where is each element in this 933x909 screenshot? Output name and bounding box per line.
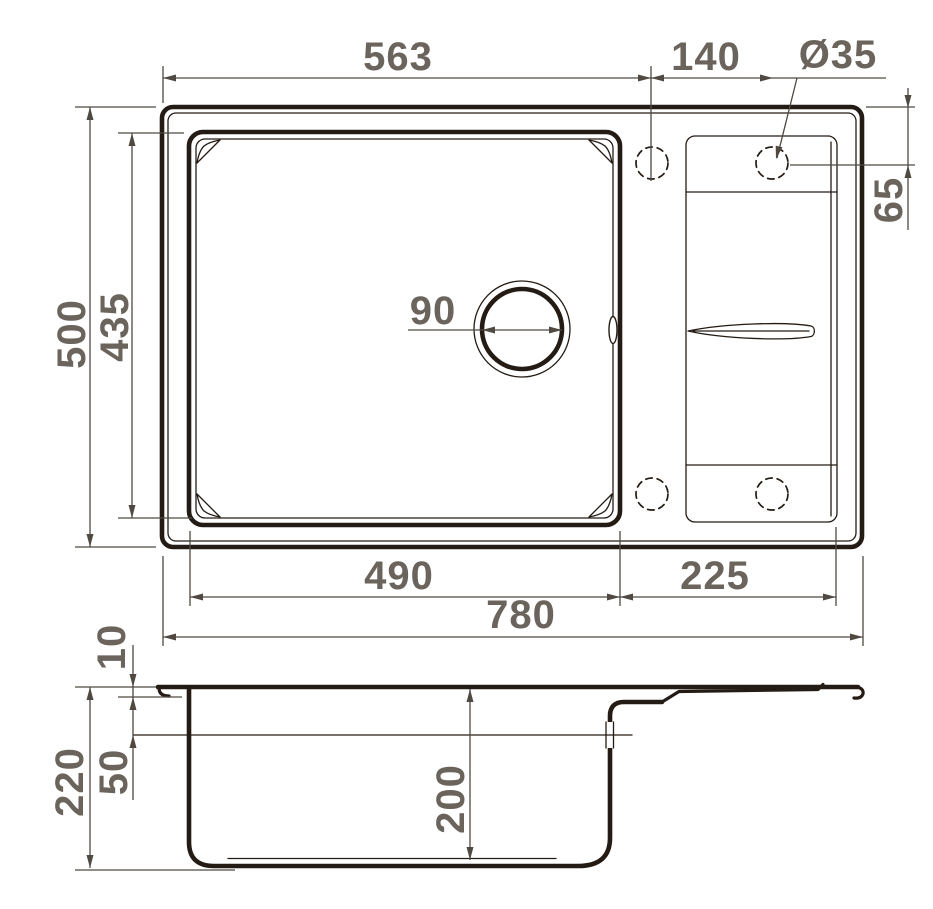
- faucet-hole-bottom-right: [756, 478, 788, 510]
- dim-label-rim-height: 10: [92, 624, 132, 671]
- dim-label-hole-spacing: 140: [671, 37, 741, 77]
- dim-label-hole-diameter: Ø35: [799, 35, 878, 75]
- dimension-lines: [90, 78, 915, 868]
- dim-label-overall-depth: 500: [52, 299, 92, 369]
- arrowheads: [87, 75, 912, 869]
- bowl-corner-chamfer-br: [589, 494, 612, 517]
- faucet-hole-bottom-left: [636, 478, 668, 510]
- bowl-corner-chamfer-tl: [197, 140, 220, 163]
- dim-label-drain-diameter: 90: [410, 291, 457, 331]
- top-view: [162, 107, 862, 547]
- dim-label-bowl-width: 490: [364, 556, 434, 596]
- dim-label-overflow-drop: 50: [94, 749, 134, 796]
- dim-label-wing-width: 225: [680, 556, 750, 596]
- dim-label-bowl-span: 563: [363, 37, 433, 77]
- rim-outline: [162, 107, 862, 547]
- dimensions: [75, 66, 915, 870]
- sink-dimension-drawing: 563 140 Ø35 65 500 435 90 490 225 780 10…: [0, 0, 933, 909]
- drain-groove: [688, 324, 814, 339]
- bowl-corner-chamfer-tr: [589, 140, 612, 163]
- faucet-hole-top-left: [636, 147, 668, 179]
- rim-inner-line: [168, 113, 856, 541]
- dim-label-hole-inset: 65: [869, 177, 909, 224]
- dim-label-bowl-depth-outer: 435: [95, 292, 135, 362]
- dim-label-overall-width: 780: [486, 595, 556, 635]
- overflow-slot: [609, 317, 617, 344]
- dim-label-bowl-inner-depth: 200: [431, 764, 471, 834]
- bowl-corner-chamfer-bl: [197, 494, 220, 517]
- faucet-hole-top-right: [756, 147, 788, 179]
- bowl-profile: [189, 689, 662, 866]
- side-view: [133, 685, 863, 867]
- extension-lines: [75, 66, 915, 870]
- dim-label-overall-height: 220: [50, 747, 90, 817]
